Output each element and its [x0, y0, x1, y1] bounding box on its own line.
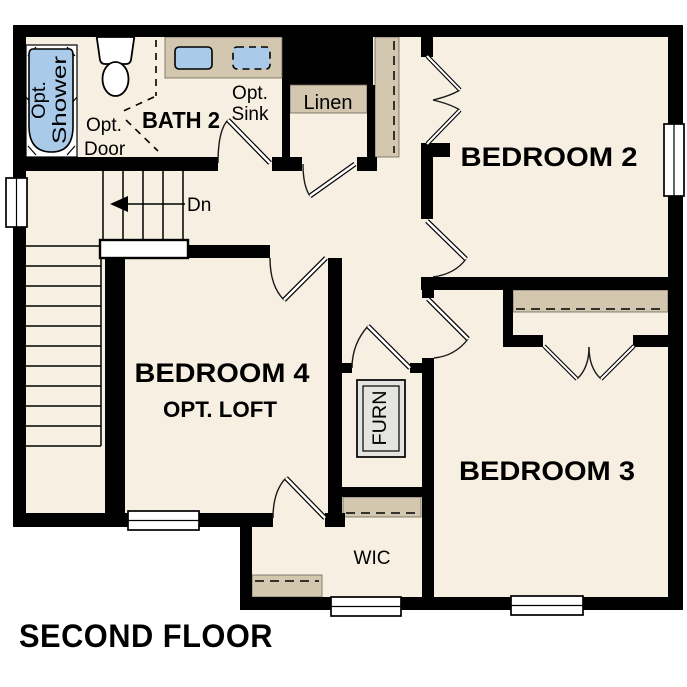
bedroom2-closet-shelf [375, 37, 399, 157]
wic-lower-shelf [252, 575, 322, 597]
window-wic [331, 597, 401, 616]
bedroom2-label: BEDROOM 2 [461, 142, 638, 172]
opt-shower-label-line2: Shower [50, 55, 71, 144]
opt-shower-label-line1: Opt. [29, 81, 50, 119]
window-left-hall [6, 178, 27, 227]
window-bedroom4 [128, 511, 199, 530]
dn-label: Dn [187, 195, 211, 216]
bath2-label: BATH 2 [142, 107, 220, 133]
window-bedroom3 [511, 596, 583, 615]
opt-loft-label: OPT. LOFT [163, 397, 278, 422]
bedroom3-label: BEDROOM 3 [459, 456, 635, 486]
opt-door-label-line2: Door [84, 139, 126, 160]
bedroom4-label: BEDROOM 4 [135, 358, 310, 388]
furn-label: FURN [370, 391, 391, 446]
linen-label: Linen [304, 92, 353, 114]
opt-door-label-line1: Opt. [86, 115, 122, 136]
floor-plan-page: BATH 2 Opt. Sink Opt. Door Opt. Shower L… [0, 0, 687, 687]
window-bedroom2 [664, 124, 684, 196]
opt-sink-label-line2: Sink [232, 104, 269, 125]
floor-plan-drawing: BATH 2 Opt. Sink Opt. Door Opt. Shower L… [0, 0, 687, 687]
opt-sink-label-line1: Opt. [232, 83, 268, 104]
stair-landing [100, 240, 188, 258]
wic-upper-shelf [343, 497, 421, 517]
floor-title: SECOND FLOOR [19, 618, 273, 654]
wic-label: WIC [354, 548, 391, 569]
sink [175, 47, 212, 69]
opt-sink [233, 47, 270, 69]
